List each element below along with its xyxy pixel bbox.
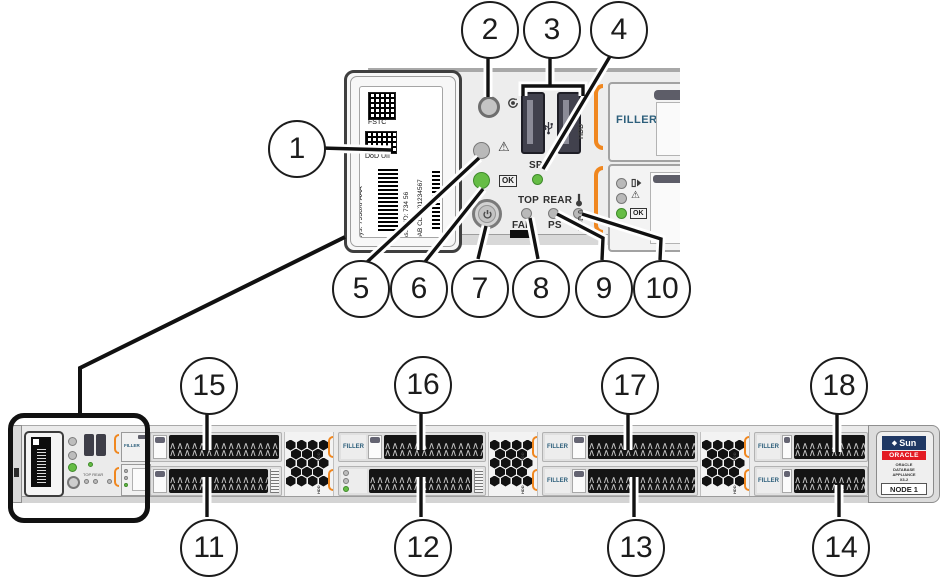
top-fan-led	[521, 208, 532, 219]
vent3-bracket-bottom	[744, 469, 749, 491]
locate-button	[478, 96, 500, 118]
callout-14: 14	[812, 519, 870, 577]
panel-notch	[510, 230, 537, 238]
asset-id-text: Asset ID: 734 56	[403, 192, 410, 238]
warning-icon: ⚠	[498, 140, 510, 155]
drive-17-tray: FILLER ∧∧∧∧∧∧∧∧∧∧∧∧∧∧∧∧∧∧∧∧∧∧∧∧∧∧∧∧∧∧∧∧	[542, 432, 698, 462]
drive-12-label	[474, 469, 483, 493]
drive-13-tray: FILLER ∧∧∧∧∧∧∧∧∧∧∧∧∧∧∧∧∧∧∧∧∧∧∧∧∧∧∧∧∧∧∧∧	[542, 466, 698, 496]
highlight-box	[8, 413, 150, 523]
vent-panel-3: HDD HDD	[700, 432, 750, 496]
callout-13: 13	[607, 519, 665, 577]
drive-11-latch	[153, 469, 167, 493]
power-icon	[482, 209, 493, 220]
vent2-bracket-top	[532, 436, 537, 458]
oracle-badge: ORACLE	[882, 451, 926, 460]
drive-11-label	[270, 469, 279, 493]
drive-16-tray: FILLER ∧∧∧∧∧∧∧∧∧∧∧∧∧∧∧∧∧∧∧∧∧∧∧∧∧∧∧∧∧∧∧∧	[338, 432, 486, 462]
node-label: NODE 1	[881, 483, 927, 495]
rear-label: REAR	[543, 195, 572, 206]
callout-15: 15	[180, 357, 238, 415]
drive-13-filler-label: FILLER	[545, 469, 570, 493]
drive-11-tray: ∧∧∧∧∧∧∧∧∧∧∧∧∧∧∧∧∧∧∧∧∧∧∧∧∧∧∧∧∧∧∧∧	[150, 466, 282, 496]
vent1-bracket-bottom	[328, 469, 333, 491]
vent3-label-bottom: HDD	[732, 485, 737, 494]
filler-bay-detail: FILLER	[608, 82, 680, 162]
sun-badge: ◆ Sun	[882, 436, 926, 450]
hdd-ok-led	[616, 208, 627, 219]
ok-led	[473, 172, 490, 189]
drive-16-latch	[368, 435, 382, 459]
hdd-warning-icon: ⚠	[631, 190, 640, 201]
filler-latch	[654, 90, 680, 100]
drive-16-filler-label: FILLER	[341, 435, 366, 459]
dod-uii-caption: DoD UII	[365, 153, 390, 160]
drive-15-latch	[153, 435, 167, 459]
drive-15-handle: ∧∧∧∧∧∧∧∧∧∧∧∧∧∧∧∧∧∧∧∧∧∧∧∧∧∧∧∧∧∧∧∧	[169, 435, 279, 459]
drive-14-tray: FILLER ∧∧∧∧∧∧∧∧∧∧∧∧∧∧∧∧∧∧∧∧∧∧∧∧∧∧∧∧∧∧∧∧	[754, 466, 868, 496]
sp-led-label: SP	[529, 160, 543, 171]
endcap: ◆ Sun ORACLE ORACLE DATABASE APPLIANCE X…	[868, 425, 940, 503]
sun-logo-icon: ◆	[892, 439, 897, 447]
hdd-bracket-bottom	[594, 166, 603, 234]
serial-label-card: FSTC DoD UII Sys: 7938XFAAA Asset ID: 73…	[359, 86, 443, 238]
hardware-front-panel-figure: FSTC DoD UII Sys: 7938XFAAA Asset ID: 73…	[0, 0, 947, 577]
callout-11: 11	[180, 519, 238, 577]
callout-9: 9	[575, 260, 633, 318]
drive-18-handle: ∧∧∧∧∧∧∧∧∧∧∧∧∧∧∧∧∧∧∧∧∧∧∧∧∧∧∧∧∧∧∧∧	[794, 435, 865, 459]
callout-16: 16	[394, 356, 452, 414]
drive-12-handle: ∧∧∧∧∧∧∧∧∧∧∧∧∧∧∧∧∧∧∧∧∧∧∧∧∧∧∧∧∧∧∧∧	[369, 469, 472, 493]
vent2-bracket-bottom	[532, 469, 537, 491]
drive-18-latch	[782, 435, 792, 459]
locate-icon	[506, 96, 520, 115]
callout-18: 18	[810, 357, 868, 415]
pullout-tab: FSTC DoD UII Sys: 7938XFAAA Asset ID: 73…	[344, 70, 462, 253]
usb-port-1	[521, 92, 545, 154]
fstc-datamatrix	[368, 92, 396, 120]
drive-18-filler-label: FILLER	[757, 435, 780, 459]
drive-17-latch	[572, 435, 586, 459]
asset-uii-text: 9AB CDEF01234567	[417, 179, 424, 238]
hdd-handle	[650, 172, 680, 244]
hdd-bracket-top-label: HDD	[578, 124, 585, 139]
hdd0-bracket-label: HDD 0	[578, 210, 585, 231]
drive-17-handle: ∧∧∧∧∧∧∧∧∧∧∧∧∧∧∧∧∧∧∧∧∧∧∧∧∧∧∧∧∧∧∧∧	[588, 435, 695, 459]
drive-13-latch	[572, 469, 586, 493]
filler-handle	[656, 102, 680, 156]
hdd-fault-led	[616, 193, 627, 204]
vent3-label-top: HDD	[732, 452, 737, 461]
vent-panel-1: HDD HDD	[284, 432, 334, 496]
hdd-bracket-top	[594, 84, 603, 150]
fstc-caption: FSTC	[368, 119, 386, 126]
sys-serial-text: Sys: 7938XFAAA	[359, 186, 364, 238]
ps-label: PS	[548, 220, 562, 231]
vent2-label-bottom: HDD	[520, 485, 525, 494]
dod-uii-datamatrix	[365, 131, 397, 154]
oracle-badge-label: ORACLE	[889, 452, 919, 459]
callout-10: 10	[633, 260, 691, 318]
fault-led	[473, 142, 490, 159]
ok-led-label: OK	[499, 175, 517, 187]
vent2-label-top: HDD	[520, 452, 525, 461]
drive-14-handle: ∧∧∧∧∧∧∧∧∧∧∧∧∧∧∧∧∧∧∧∧∧∧∧∧∧∧∧∧∧∧∧∧	[794, 469, 865, 493]
top-label: TOP	[518, 195, 539, 206]
hdd-ok-label: OK	[630, 208, 647, 219]
control-panel-detail: FSTC DoD UII Sys: 7938XFAAA Asset ID: 73…	[340, 62, 680, 255]
drive-15-tray: ∧∧∧∧∧∧∧∧∧∧∧∧∧∧∧∧∧∧∧∧∧∧∧∧∧∧∧∧∧∧∧∧	[150, 432, 282, 462]
product-name: ORACLE DATABASE APPLIANCE X3-2	[877, 462, 931, 482]
callout-17: 17	[601, 357, 659, 415]
usb-icon	[543, 120, 554, 140]
asset-barcode	[432, 169, 440, 229]
vent-panel-2: HDD HDD	[488, 432, 538, 496]
sun-badge-label: Sun	[899, 438, 916, 448]
serial-barcode	[378, 167, 398, 231]
vent1-bracket-top	[328, 436, 333, 458]
drive-17-filler-label: FILLER	[545, 435, 570, 459]
hdd-ready-led	[616, 178, 627, 189]
drive-12-tray: ∧∧∧∧∧∧∧∧∧∧∧∧∧∧∧∧∧∧∧∧∧∧∧∧∧∧∧∧∧∧∧∧	[338, 466, 486, 496]
drive-14-latch	[782, 469, 792, 493]
rear-ps-led	[548, 208, 559, 219]
drive-11-handle: ∧∧∧∧∧∧∧∧∧∧∧∧∧∧∧∧∧∧∧∧∧∧∧∧∧∧∧∧∧∧∧∧	[169, 469, 268, 493]
drive-18-tray: FILLER ∧∧∧∧∧∧∧∧∧∧∧∧∧∧∧∧∧∧∧∧∧∧∧∧∧∧∧∧∧∧∧∧	[754, 432, 868, 462]
callout-12: 12	[394, 519, 452, 577]
callout-7: 7	[451, 260, 509, 318]
callout-5: 5	[332, 260, 390, 318]
callout-3: 3	[523, 1, 581, 59]
callout-6: 6	[390, 260, 448, 318]
drive-12-led-strip	[341, 469, 367, 493]
sp-led	[532, 174, 543, 185]
vent1-label-bottom: HDD	[316, 485, 321, 494]
hdd0-bay-detail: ⚠ OK	[608, 164, 680, 252]
drive-16-handle: ∧∧∧∧∧∧∧∧∧∧∧∧∧∧∧∧∧∧∧∧∧∧∧∧∧∧∧∧∧∧∧∧	[384, 435, 483, 459]
power-button	[472, 199, 502, 229]
callout-1: 1	[268, 120, 326, 178]
vent3-bracket-top	[744, 436, 749, 458]
callout-8: 8	[512, 260, 570, 318]
callout-2: 2	[461, 1, 519, 59]
filler-bay-label: FILLER	[616, 114, 658, 126]
drive-14-filler-label: FILLER	[757, 469, 780, 493]
callout-4: 4	[590, 1, 648, 59]
vent1-label-top: HDD	[316, 452, 321, 461]
drive-13-handle: ∧∧∧∧∧∧∧∧∧∧∧∧∧∧∧∧∧∧∧∧∧∧∧∧∧∧∧∧∧∧∧∧	[588, 469, 695, 493]
